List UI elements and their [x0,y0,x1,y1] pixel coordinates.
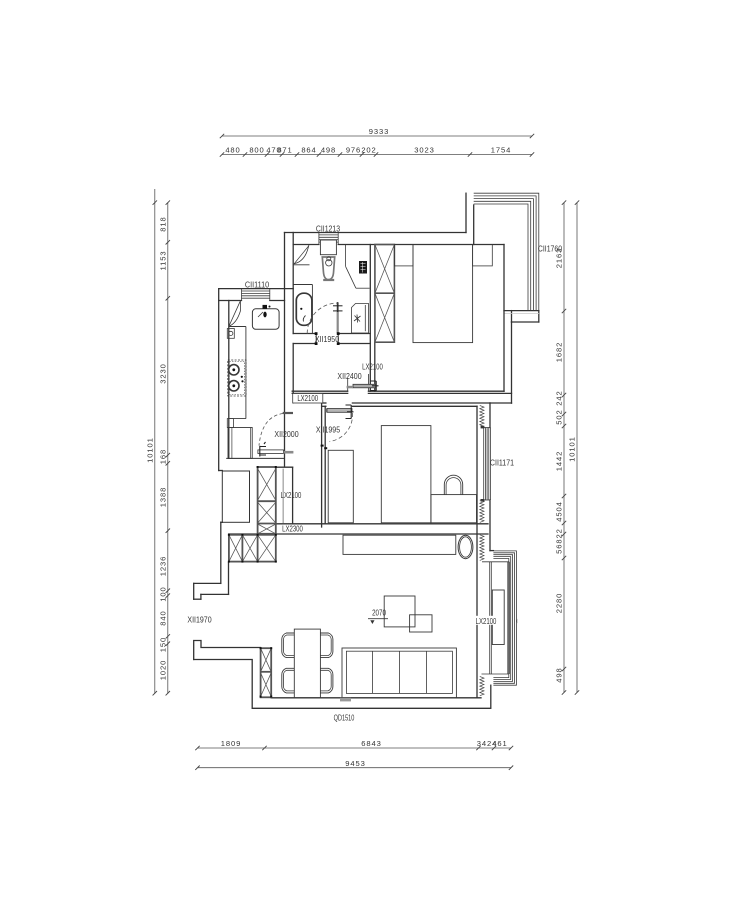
svg-text:CII1171: CII1171 [490,458,514,468]
svg-text:XII1995: XII1995 [316,425,340,435]
svg-text:56822: 56822 [555,528,564,554]
svg-text:242: 242 [555,390,564,405]
svg-text:6843: 6843 [361,739,382,748]
svg-text:LX2100: LX2100 [362,362,383,372]
svg-text:1153: 1153 [159,251,168,271]
svg-text:LX2100: LX2100 [297,393,318,403]
svg-text:LX2300: LX2300 [282,524,303,534]
svg-text:9333: 9333 [369,127,390,136]
svg-text:10101: 10101 [146,437,155,463]
svg-text:150: 150 [159,637,168,652]
svg-text:168: 168 [159,449,168,464]
svg-text:LX2100: LX2100 [476,616,497,626]
svg-text:1388: 1388 [159,487,168,508]
svg-text:202: 202 [361,146,376,155]
svg-text:XII1950: XII1950 [315,334,339,344]
svg-text:100: 100 [159,586,168,601]
svg-text:XII2400: XII2400 [337,371,361,381]
svg-text:800: 800 [249,146,264,155]
svg-text:CII1760: CII1760 [538,244,562,254]
svg-text:818: 818 [159,216,168,231]
svg-text:976: 976 [346,146,361,155]
svg-text:498: 498 [555,667,564,682]
svg-text:9453: 9453 [345,759,366,768]
svg-text:QD1510: QD1510 [334,713,355,723]
svg-text:1442: 1442 [555,451,564,472]
svg-text:XII1970: XII1970 [187,615,211,625]
svg-text:2280: 2280 [555,593,564,614]
svg-text:CII1110: CII1110 [245,280,269,290]
svg-text:840: 840 [159,610,168,625]
svg-text:LX2100: LX2100 [281,490,302,500]
svg-text:XII2000: XII2000 [274,429,298,439]
svg-text:3230: 3230 [159,363,168,384]
svg-text:871: 871 [277,146,292,155]
svg-text:1236: 1236 [159,556,168,577]
svg-text:2070: 2070 [372,608,386,618]
svg-text:4504: 4504 [555,501,564,522]
svg-text:1809: 1809 [221,739,242,748]
svg-text:480: 480 [225,146,240,155]
svg-text:864: 864 [301,146,316,155]
svg-text:1682: 1682 [555,342,564,363]
svg-text:10101: 10101 [568,436,577,462]
svg-text:498: 498 [321,146,336,155]
svg-text:3023: 3023 [414,146,435,155]
svg-text:1020: 1020 [159,660,168,681]
svg-text:CII1213: CII1213 [316,224,340,234]
svg-text:1754: 1754 [491,146,512,155]
svg-text:502: 502 [555,409,564,424]
svg-text:461: 461 [492,739,507,748]
